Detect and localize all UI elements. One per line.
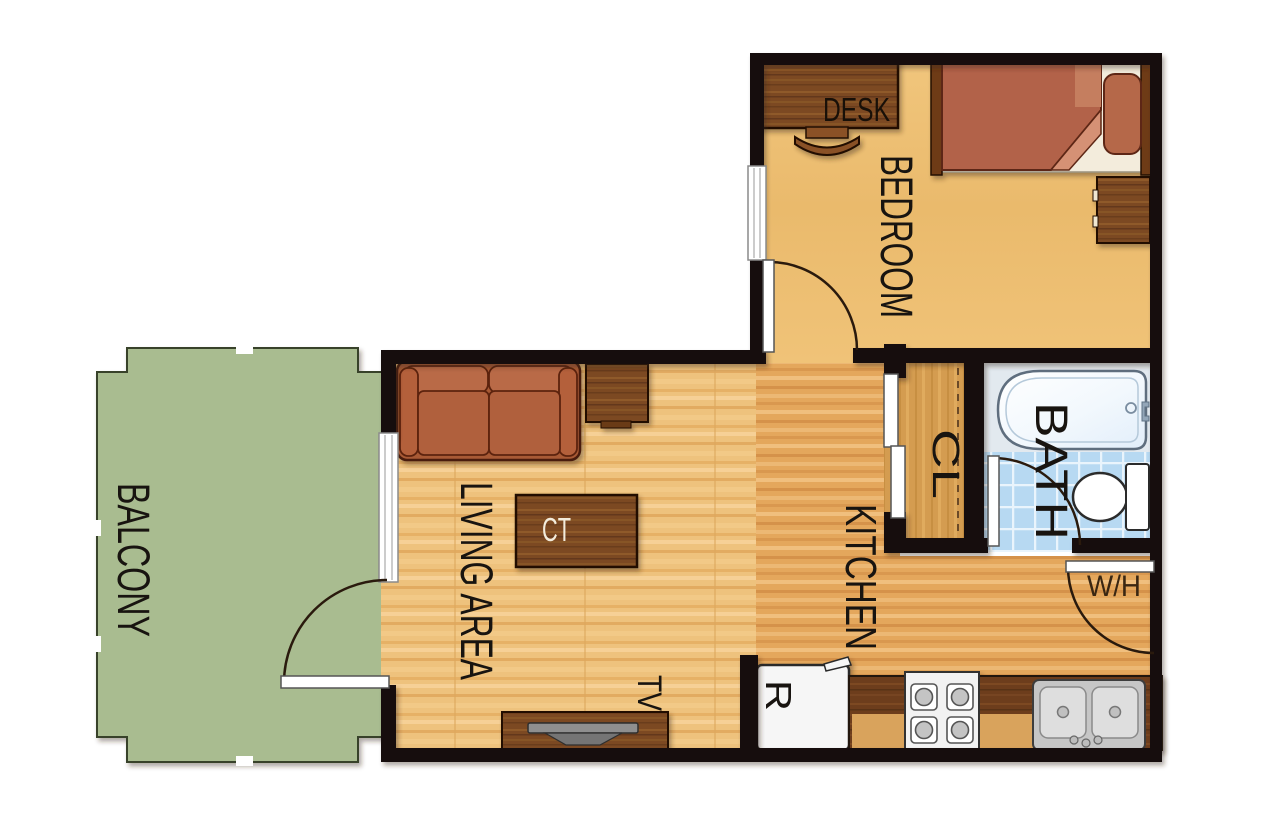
end-table [586,364,648,428]
railing-gap [88,520,101,536]
living-top-wall [381,350,766,364]
tv-stand [502,712,668,750]
kitchen-label: KITCHEN [836,504,885,650]
closet-door-panel [891,446,905,518]
coffee-table [516,495,637,567]
balcony-wall-upper [381,350,396,437]
balcony-wall-lower [381,685,396,750]
sofa [397,361,580,460]
faucet-knob [1094,736,1102,744]
nightstand [1093,177,1150,243]
balcony-label: BALCONY [108,483,159,637]
bath-door-leaf [988,456,999,546]
bath-bottom-wall-right [1072,538,1162,553]
cabinet-inset [852,714,904,748]
floor-plan-canvas: BEDROOM BATH CL KITCHEN LIVING AREA BALC… [0,0,1262,832]
sofa-seat-cushion [489,391,560,455]
living-area-label: LIVING AREA [451,482,502,680]
end-table-top [586,364,648,422]
faucet-knob [1070,736,1078,744]
east-exterior-wall [1150,53,1162,762]
nightstand-handle [1093,190,1098,201]
sink-drain [1110,707,1121,718]
sofa-seat-cushion [418,391,489,455]
tv-screen [528,723,638,733]
bedroom-window [748,166,766,260]
refrigerator-label: R [758,680,799,711]
stove [905,672,979,752]
railing-gap [88,636,101,652]
railing-gap [236,756,253,766]
bedroom-label: BEDROOM [871,155,922,318]
nightstand-top [1097,177,1150,243]
bath-label: BATH [1026,402,1077,540]
closet-top-stub [884,344,906,378]
bed-foot-rail [931,54,942,175]
nightstand-handle [1093,216,1098,227]
living-room-window [379,433,398,582]
tv-label: TV [630,675,668,711]
sofa-armrest [559,368,577,456]
bedroom-door-leaf [763,260,774,352]
closet-label: CL [924,429,966,499]
cabinet-inset [977,714,1033,748]
railing-gap [236,343,253,354]
south-exterior-wall [381,748,1162,762]
desk-chair-seat [806,127,848,138]
balcony-door-leaf [281,676,389,688]
coffee-table-label: CT [542,511,571,548]
desk-label: DESK [823,91,890,128]
living-kitchen-stub-wall [740,655,758,755]
water-heater-label: W/H [1087,570,1141,603]
bed-sheet-band [1075,58,1101,107]
toilet-tank [1126,464,1149,530]
closet-bath-wall [964,348,984,553]
kitchen-sink [1033,680,1145,750]
sink-drain [1058,707,1069,718]
bed [931,54,1151,175]
sofa-armrest [400,368,418,456]
floor-plan-page: BEDROOM BATH CL KITCHEN LIVING AREA BALC… [0,0,1262,832]
bath-bottom-wall-left [906,538,988,553]
faucet-knob [1082,739,1090,747]
end-table-leg [601,421,631,428]
pillow [1104,74,1141,154]
closet-door-panel [884,374,898,447]
toilet-bowl [1073,473,1127,521]
bed-head-rail [1141,54,1151,175]
bedroom-top-wall [750,53,1162,65]
